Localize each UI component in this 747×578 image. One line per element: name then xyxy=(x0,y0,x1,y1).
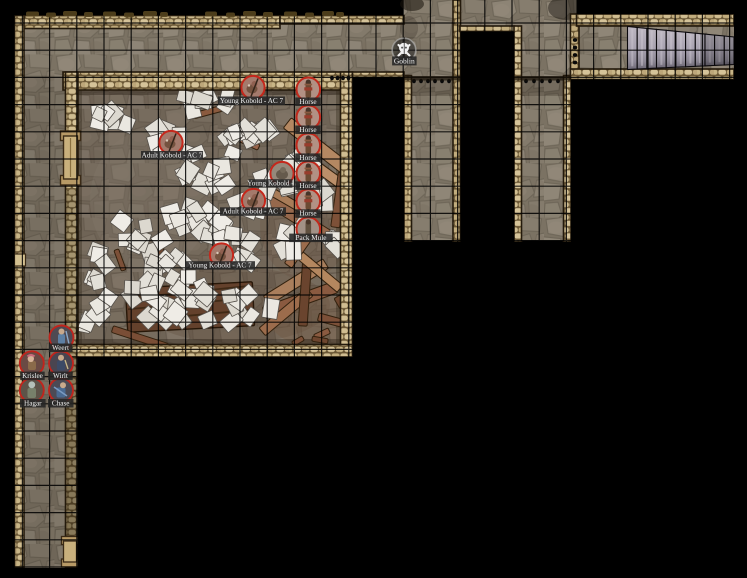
svg-text:Chase: Chase xyxy=(52,399,70,407)
svg-text:Young Kobold -: Young Kobold - xyxy=(247,180,294,188)
svg-text:Wirlt: Wirlt xyxy=(53,372,68,380)
svg-text:Horse: Horse xyxy=(299,182,316,190)
svg-text:Pack Mule: Pack Mule xyxy=(296,234,327,242)
svg-text:Young Kobold - AC 7: Young Kobold - AC 7 xyxy=(220,97,284,105)
svg-text:Goblin: Goblin xyxy=(394,56,415,65)
svg-text:Adult Kobold - AC 7: Adult Kobold - AC 7 xyxy=(223,208,284,216)
svg-text:Horse: Horse xyxy=(299,126,316,134)
svg-text:Weert: Weert xyxy=(52,344,69,352)
svg-text:Horse: Horse xyxy=(299,98,316,106)
svg-text:Adult Kobold - AC 7: Adult Kobold - AC 7 xyxy=(142,151,203,159)
svg-text:Horse: Horse xyxy=(299,154,316,162)
svg-text:Horse: Horse xyxy=(299,210,316,218)
svg-text:Young Kobold - AC 7: Young Kobold - AC 7 xyxy=(188,262,252,270)
svg-text:Krislee: Krislee xyxy=(22,372,43,380)
svg-text:Hagar: Hagar xyxy=(24,399,42,407)
